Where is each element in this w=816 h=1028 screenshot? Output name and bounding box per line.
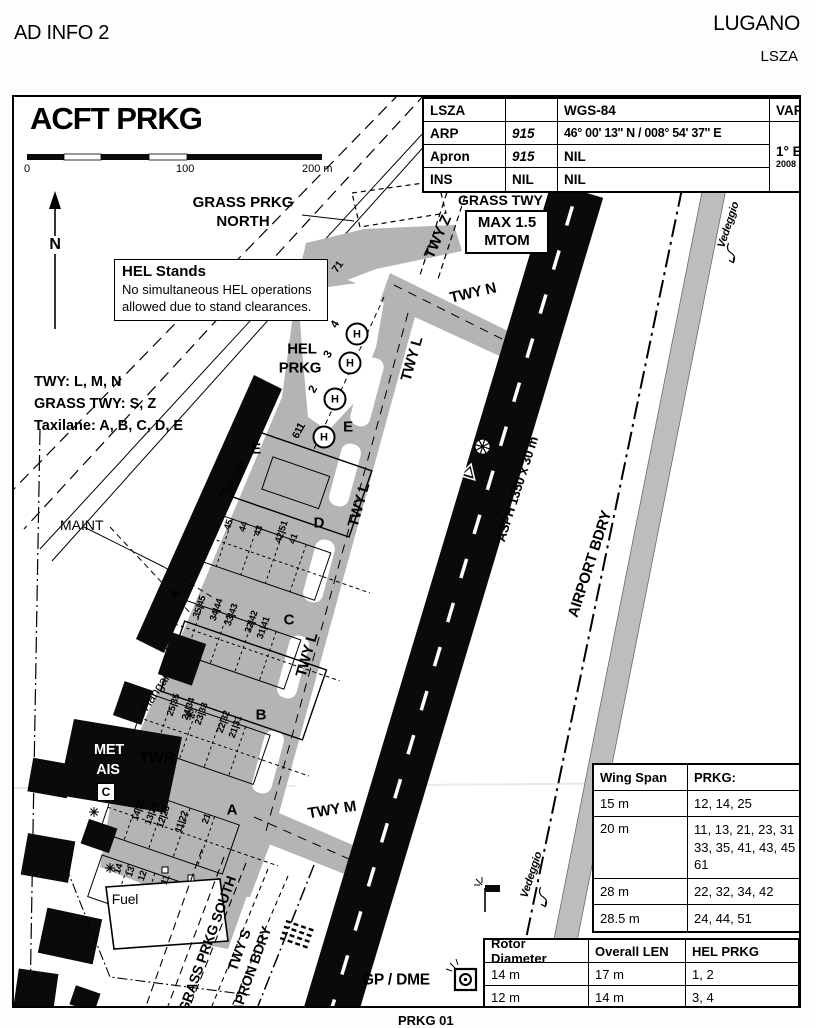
info-cell: 915 bbox=[506, 145, 558, 168]
maint-label: MAINT bbox=[60, 517, 104, 533]
map-title: ACFT PRKG bbox=[30, 101, 202, 137]
prkg-header: PRKG: bbox=[688, 765, 801, 791]
info-cell: 46° 00' 13'' N / 008° 54' 37'' E bbox=[558, 122, 770, 145]
grass-prkg-north-line2: NORTH bbox=[182, 212, 304, 231]
helipad-4: H bbox=[346, 323, 369, 346]
hel-stands-note-line1: No simultaneous HEL operations bbox=[122, 281, 320, 298]
rotor-cell: 1, 2 bbox=[686, 963, 798, 986]
twy-legend: TWY: L, M, N GRASS TWY: S, Z Taxilane: A… bbox=[34, 371, 183, 437]
taxilane-e-label: E bbox=[343, 420, 353, 435]
rotor-header: Rotor Diameter bbox=[485, 940, 589, 963]
info-cell: Apron bbox=[424, 145, 506, 168]
met-label: MET bbox=[94, 743, 124, 758]
info-cell: NIL bbox=[558, 145, 770, 168]
prkg-cell: 24, 44, 51 bbox=[688, 905, 801, 931]
rotor-cell: 3, 4 bbox=[686, 986, 798, 1008]
max-mtom-line1: MAX 1.5 bbox=[467, 214, 547, 232]
info-cell: 915 bbox=[506, 122, 558, 145]
grass-twy-list: GRASS TWY: S, Z bbox=[34, 393, 183, 415]
max-mtom-line2: MTOM bbox=[467, 232, 547, 250]
rotor-table: Rotor Diameter Overall LEN HEL PRKG 14 m… bbox=[483, 938, 800, 1008]
prkg-cell: 22, 32, 34, 42 bbox=[688, 879, 801, 905]
rotor-cell: 14 m bbox=[485, 963, 589, 986]
hel-stands-note-line2: allowed due to stand clearances. bbox=[122, 298, 320, 315]
page-footer: PRKG 01 bbox=[398, 1013, 454, 1028]
helipad-h: H bbox=[331, 393, 339, 405]
hel-prkg-label-line2: PRKG bbox=[279, 361, 322, 376]
aerodrome-info-table: LSZA WGS-84 VAR ARP 915 46° 00' 13'' N /… bbox=[422, 97, 801, 193]
wingspan-table: Wing Span PRKG: 15 m 12, 14, 25 20 m 11,… bbox=[592, 763, 801, 933]
airport-icao: LSZA bbox=[760, 48, 798, 65]
info-cell: INS bbox=[424, 168, 506, 191]
grass-prkg-north-line1: GRASS PRKG bbox=[182, 193, 304, 212]
c-box-letter: C bbox=[102, 785, 111, 799]
hel-stands-note: HEL Stands No simultaneous HEL operation… bbox=[114, 259, 328, 321]
max-mtom-box: MAX 1.5 MTOM bbox=[465, 210, 549, 254]
taxilane-d-label: D bbox=[314, 516, 325, 531]
hel-prkg-header: HEL PRKG bbox=[686, 940, 798, 963]
wingspan-cell: 28.5 m bbox=[594, 905, 688, 931]
chart-frame: ACFT PRKG 0 100 200 m N GRASS PRKG NORTH… bbox=[12, 95, 801, 1008]
gp-dme-icon bbox=[446, 959, 476, 990]
fuel-label: Fuel bbox=[112, 892, 138, 906]
light-icon bbox=[89, 807, 99, 817]
wingspan-cell: 28 m bbox=[594, 879, 688, 905]
taxilane-a-label: A bbox=[227, 803, 238, 818]
taxilane-e-label: E bbox=[251, 442, 261, 457]
grass-twy-label: GRASS TWY bbox=[458, 192, 543, 208]
prkg-cell: 11, 13, 21, 23, 31 33, 35, 41, 43, 45 61 bbox=[688, 817, 801, 879]
helipad-3: H bbox=[339, 352, 362, 375]
var-header: VAR bbox=[770, 99, 801, 122]
helipad-2: H bbox=[324, 388, 347, 411]
scale-200: 200 m bbox=[302, 163, 333, 175]
taxilane-list: Taxilane: A, B, C, D, E bbox=[34, 415, 183, 437]
helipad-h: H bbox=[320, 431, 328, 443]
hel-stands-note-title: HEL Stands bbox=[122, 263, 320, 280]
north-arrow bbox=[49, 191, 61, 329]
helipad-h: H bbox=[346, 357, 354, 369]
c-box: C bbox=[97, 783, 115, 801]
helipad-h: H bbox=[353, 328, 361, 340]
airport-name: LUGANO bbox=[713, 12, 800, 36]
info-cell: NIL bbox=[506, 168, 558, 191]
rotor-cell: 12 m bbox=[485, 986, 589, 1008]
info-cell bbox=[506, 99, 558, 122]
prkg-cell: 12, 14, 25 bbox=[688, 791, 801, 817]
wingspan-cell: 15 m bbox=[594, 791, 688, 817]
rotor-cell: 14 m bbox=[589, 986, 686, 1008]
var-value: 1° E bbox=[776, 144, 801, 159]
windsock-icon bbox=[474, 877, 500, 912]
wingspan-cell: 20 m bbox=[594, 817, 688, 879]
gp-dme-label: GP / DME bbox=[362, 972, 430, 988]
taxilane-c-label: C bbox=[284, 613, 295, 628]
grass-prkg-north-label: GRASS PRKG NORTH bbox=[182, 193, 304, 231]
helipad-1: H bbox=[313, 426, 336, 449]
hel-prkg-label-line1: HEL bbox=[287, 342, 316, 357]
info-cell: ARP bbox=[424, 122, 506, 145]
taxilane-b-label: B bbox=[256, 708, 267, 723]
light-icon bbox=[170, 589, 180, 599]
ais-label: AIS bbox=[96, 763, 120, 778]
closed-area-hatch bbox=[280, 921, 313, 947]
len-header: Overall LEN bbox=[589, 940, 686, 963]
scale-bar bbox=[27, 154, 322, 160]
scale-100: 100 bbox=[176, 163, 194, 175]
twr-label: TWR bbox=[139, 751, 175, 767]
rotor-cell: 17 m bbox=[589, 963, 686, 986]
var-year: 2008 bbox=[776, 159, 796, 169]
wingspan-header: Wing Span bbox=[594, 765, 688, 791]
info-cell: WGS-84 bbox=[558, 99, 770, 122]
info-cell: NIL bbox=[558, 168, 770, 191]
twy-list: TWY: L, M, N bbox=[34, 371, 183, 393]
north-label: N bbox=[47, 236, 62, 254]
small-marker bbox=[162, 867, 168, 873]
info-cell: LSZA bbox=[424, 99, 506, 122]
var-value-cell: 1° E 2008 bbox=[770, 122, 801, 191]
scale-0: 0 bbox=[24, 163, 30, 175]
doc-title: AD INFO 2 bbox=[14, 22, 109, 45]
chart-page: { "header": {"doc_title": "AD INFO 2", "… bbox=[0, 0, 816, 1024]
